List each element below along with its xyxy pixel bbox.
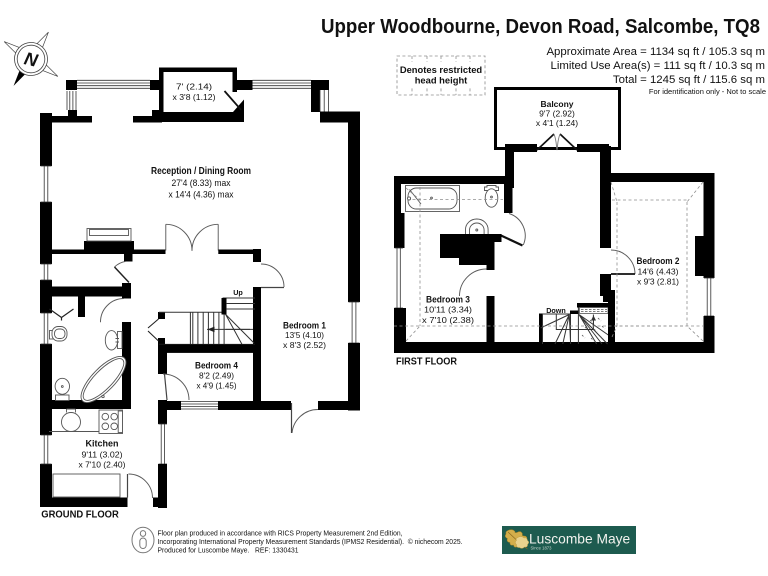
svg-text:8'2 (2.49): 8'2 (2.49)	[199, 372, 234, 381]
svg-text:Total = 1245 sq ft / 115.6 sq: Total = 1245 sq ft / 115.6 sq m	[613, 74, 765, 86]
svg-text:Approximate Area = 1134 sq ft: Approximate Area = 1134 sq ft / 105.3 sq…	[546, 46, 765, 58]
svg-text:For identification only - Not: For identification only - Not to scale	[649, 87, 766, 96]
svg-text:x 7'10 (2.38): x 7'10 (2.38)	[422, 316, 474, 325]
svg-text:Since 1873: Since 1873	[531, 546, 553, 551]
svg-text:x 14'4 (4.36) max: x 14'4 (4.36) max	[169, 188, 234, 199]
svg-text:7' (2.14): 7' (2.14)	[176, 83, 212, 92]
svg-text:Balcony: Balcony	[540, 99, 573, 109]
svg-text:9'7 (2.92): 9'7 (2.92)	[539, 109, 575, 119]
svg-text:Bedroom 2: Bedroom 2	[637, 256, 680, 266]
svg-text:27'4 (8.33) max: 27'4 (8.33) max	[172, 177, 231, 188]
svg-text:9'11 (3.02): 9'11 (3.02)	[82, 451, 123, 460]
svg-text:Kitchen: Kitchen	[86, 439, 119, 449]
svg-text:Reception / Dining Room: Reception / Dining Room	[151, 166, 251, 177]
svg-text:Bedroom 3: Bedroom 3	[426, 295, 470, 305]
svg-text:x 9'3 (2.81): x 9'3 (2.81)	[637, 278, 679, 287]
svg-text:FIRST FLOOR: FIRST FLOOR	[396, 357, 457, 368]
svg-text:x 4'1 (1.24): x 4'1 (1.24)	[536, 118, 578, 128]
svg-text:Limited Use Area(s) = 111 sq f: Limited Use Area(s) = 111 sq ft / 10.3 s…	[550, 60, 765, 72]
svg-text:13'5 (4.10): 13'5 (4.10)	[285, 331, 324, 340]
svg-text:Denotes restricted: Denotes restricted	[400, 64, 483, 75]
svg-text:Produced for Luscombe Maye.: Produced for Luscombe Maye. REF: 1330431	[158, 546, 299, 555]
svg-text:Up: Up	[233, 288, 243, 297]
svg-text:GROUND FLOOR: GROUND FLOOR	[41, 510, 119, 521]
svg-text:Down: Down	[546, 306, 566, 315]
svg-text:Bedroom 4: Bedroom 4	[195, 361, 238, 371]
svg-text:x 4'9 (1.45): x 4'9 (1.45)	[197, 382, 237, 391]
svg-text:Luscombe Maye: Luscombe Maye	[529, 532, 631, 547]
svg-text:Upper Woodbourne, Devon Road,: Upper Woodbourne, Devon Road, Salcombe, …	[321, 15, 760, 38]
svg-text:head height: head height	[415, 75, 468, 86]
svg-text:14'6 (4.43): 14'6 (4.43)	[638, 267, 679, 276]
svg-text:10'11 (3.34): 10'11 (3.34)	[424, 306, 472, 315]
svg-text:x 8'3 (2.52): x 8'3 (2.52)	[283, 341, 326, 350]
svg-text:x 3'8 (1.12): x 3'8 (1.12)	[173, 93, 216, 102]
svg-text:Bedroom 1: Bedroom 1	[283, 321, 326, 331]
svg-text:x 7'10 (2.40): x 7'10 (2.40)	[79, 461, 126, 470]
